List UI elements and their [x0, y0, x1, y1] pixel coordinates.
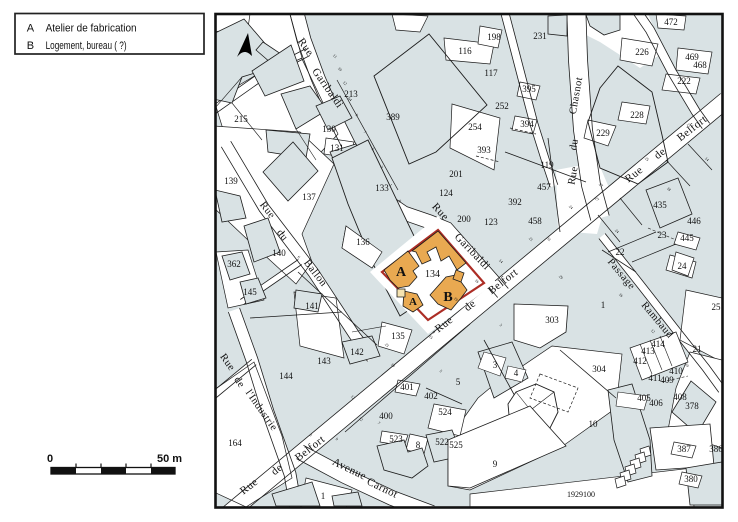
svg-text:389: 389 [386, 112, 400, 122]
svg-text:458: 458 [528, 216, 542, 226]
svg-text:du: du [568, 138, 581, 151]
svg-text:117: 117 [484, 68, 498, 78]
svg-text:394: 394 [520, 119, 534, 129]
svg-text:228: 228 [630, 110, 644, 120]
svg-text:406: 406 [649, 398, 663, 408]
svg-text:141: 141 [305, 301, 319, 311]
svg-text:0: 0 [47, 453, 53, 465]
svg-text:133: 133 [375, 183, 389, 193]
svg-text:226: 226 [635, 47, 649, 57]
svg-text:413: 413 [641, 346, 655, 356]
svg-text:254: 254 [468, 122, 482, 132]
svg-text:142: 142 [350, 347, 364, 357]
svg-text:400: 400 [379, 411, 393, 421]
svg-text:123: 123 [484, 217, 498, 227]
svg-text:445: 445 [680, 233, 694, 243]
svg-text:10: 10 [589, 419, 599, 429]
svg-text:143: 143 [317, 356, 331, 366]
svg-text:A: A [409, 296, 417, 308]
svg-text:116: 116 [458, 46, 472, 56]
svg-text:215: 215 [234, 114, 248, 124]
svg-text:522: 522 [435, 437, 449, 447]
svg-text:119: 119 [540, 160, 554, 170]
svg-text:134: 134 [425, 269, 440, 280]
svg-text:200: 200 [457, 214, 471, 224]
svg-text:A: A [27, 23, 35, 35]
svg-text:401: 401 [400, 382, 414, 392]
svg-text:124: 124 [439, 188, 453, 198]
svg-text:21: 21 [693, 344, 702, 354]
svg-text:395: 395 [522, 84, 536, 94]
svg-text:468: 468 [693, 60, 707, 70]
svg-text:472: 472 [664, 17, 678, 27]
svg-text:303: 303 [545, 315, 559, 325]
svg-text:131: 131 [330, 143, 344, 153]
svg-text:222: 222 [677, 76, 691, 86]
svg-text:446: 446 [687, 216, 701, 226]
svg-text:380: 380 [684, 474, 698, 484]
svg-text:164: 164 [228, 438, 242, 448]
svg-text:B: B [443, 290, 452, 305]
svg-text:50 m: 50 m [157, 453, 182, 465]
svg-text:201: 201 [449, 169, 463, 179]
svg-text:136: 136 [356, 237, 370, 247]
svg-text:525: 525 [449, 440, 463, 450]
svg-text:139: 139 [224, 176, 238, 186]
svg-text:198: 198 [487, 32, 501, 42]
svg-text:4: 4 [514, 368, 519, 378]
svg-text:137: 137 [302, 192, 316, 202]
svg-text:23: 23 [658, 230, 668, 240]
svg-text:412: 412 [633, 356, 647, 366]
svg-text:229: 229 [596, 128, 610, 138]
svg-text:A: A [396, 265, 407, 280]
svg-text:304: 304 [592, 364, 606, 374]
svg-text:231: 231 [533, 31, 547, 41]
svg-text:362: 362 [227, 259, 241, 269]
svg-text:1929100: 1929100 [567, 490, 595, 499]
svg-text:9: 9 [493, 459, 498, 469]
svg-text:135: 135 [391, 331, 405, 341]
svg-text:402: 402 [424, 391, 438, 401]
svg-text:457: 457 [537, 182, 551, 192]
svg-text:378: 378 [685, 401, 699, 411]
svg-text:5: 5 [456, 377, 461, 387]
svg-text:3: 3 [493, 360, 498, 370]
svg-text:24: 24 [678, 261, 688, 271]
svg-text:524: 524 [438, 407, 452, 417]
svg-text:1: 1 [601, 300, 606, 310]
svg-text:393: 393 [477, 145, 491, 155]
svg-text:130: 130 [322, 124, 336, 134]
svg-text:140: 140 [272, 248, 286, 258]
svg-text:144: 144 [279, 371, 293, 381]
svg-text:1: 1 [321, 491, 326, 501]
svg-text:523: 523 [389, 434, 403, 444]
svg-text:25: 25 [712, 302, 722, 312]
svg-text:392: 392 [508, 197, 522, 207]
svg-text:8: 8 [416, 440, 421, 450]
svg-text:435: 435 [653, 200, 667, 210]
svg-text:B: B [27, 40, 34, 52]
svg-text:Logement, bureau ( ?): Logement, bureau ( ?) [46, 40, 127, 52]
svg-text:145: 145 [243, 287, 257, 297]
svg-text:409: 409 [660, 375, 674, 385]
svg-text:386: 386 [709, 444, 723, 454]
svg-text:22: 22 [616, 247, 625, 257]
svg-text:Atelier de fabrication: Atelier de fabrication [46, 23, 137, 35]
svg-text:387: 387 [677, 444, 691, 454]
svg-text:252: 252 [495, 101, 509, 111]
